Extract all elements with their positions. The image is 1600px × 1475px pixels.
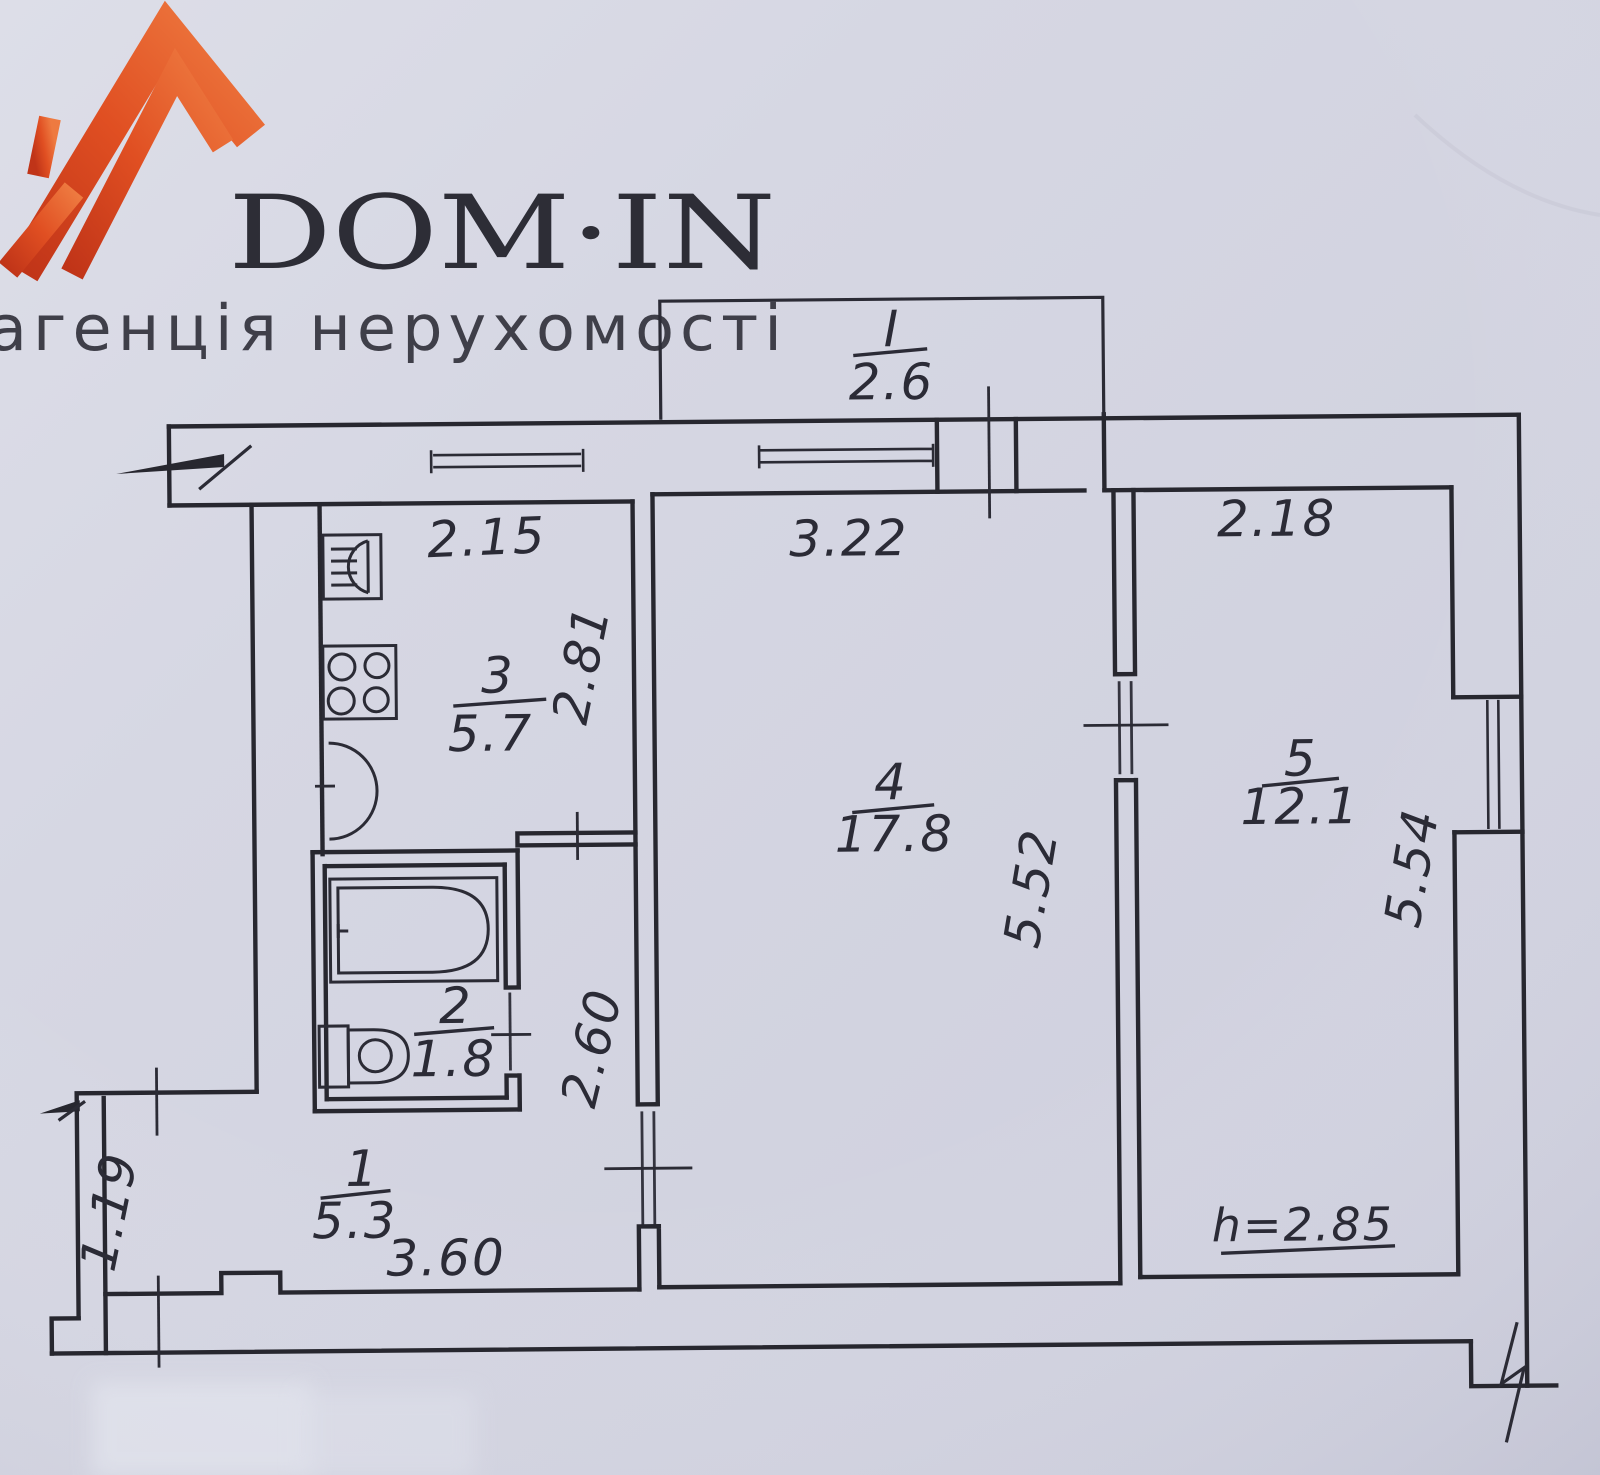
logo-title: DOM·IN xyxy=(228,174,776,293)
hall-number: 1 xyxy=(345,1140,379,1198)
balcony-number: I xyxy=(883,300,900,358)
wall-bottom-inner-bedroom xyxy=(1140,1274,1458,1277)
scanned-floor-plan-page: DOM·IN агенція нерухомості xyxy=(0,0,1600,1475)
living-area: 17.8 xyxy=(835,805,955,864)
tick-living-door xyxy=(604,1168,692,1169)
dim-kitchen-width: 2.15 xyxy=(426,506,548,569)
living-number: 4 xyxy=(874,753,908,811)
tick-bedroom-door xyxy=(1083,725,1168,726)
balcony-area: 2.6 xyxy=(848,353,934,412)
ceiling-height-note: h=2.85 xyxy=(1212,1197,1396,1254)
kitchen-area: 5.7 xyxy=(448,704,534,763)
ceiling-height: h=2.85 xyxy=(1212,1197,1395,1253)
tick-entrance-bottom xyxy=(158,1276,159,1368)
kitchen-number: 3 xyxy=(481,646,515,704)
scan-light-patch xyxy=(92,1382,312,1475)
hall-area: 5.3 xyxy=(312,1192,398,1251)
tick-entrance-top xyxy=(156,1068,157,1136)
bedroom-area: 12.1 xyxy=(1240,777,1360,836)
dim-bedroom-width: 2.18 xyxy=(1217,489,1337,548)
logo-subtitle: агенція нерухомості xyxy=(0,292,788,365)
bath-door-opening xyxy=(510,993,511,1071)
dim-living-width: 3.22 xyxy=(789,509,909,568)
tick-balcony-door xyxy=(989,386,990,518)
floor-plan-drawing: DOM·IN агенція нерухомості xyxy=(0,0,1600,1475)
roof-logo-slash-small xyxy=(38,118,50,176)
scan-light-patch-2 xyxy=(300,1392,475,1475)
dim-hall-width: 3.60 xyxy=(386,1229,506,1288)
bath-area: 1.8 xyxy=(410,1030,496,1089)
balcony-edge-connector xyxy=(1104,414,1105,490)
bath-number: 2 xyxy=(439,977,473,1035)
